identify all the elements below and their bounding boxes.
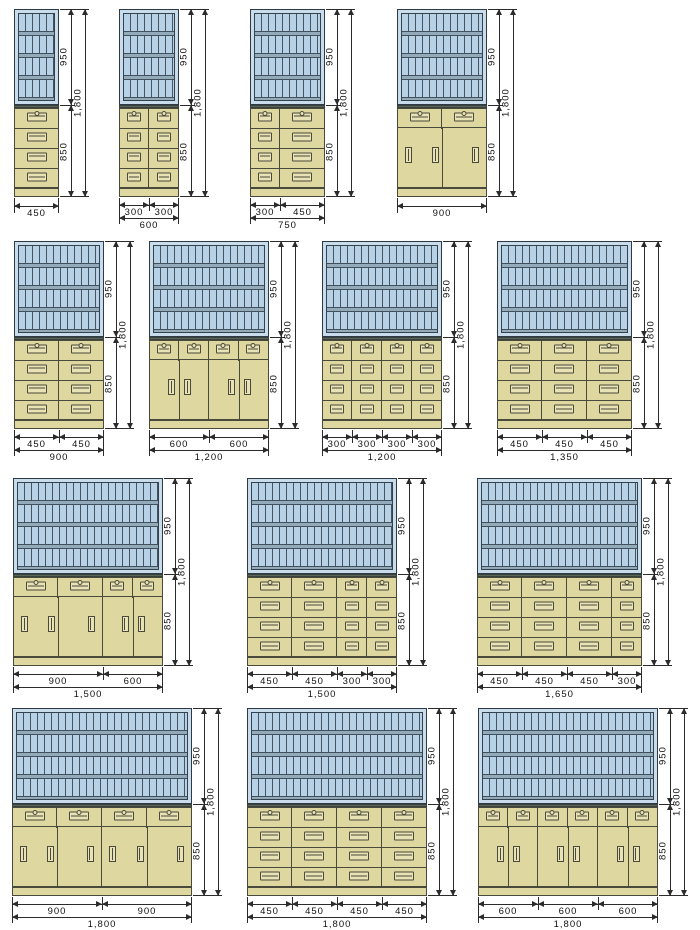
cabinet-1650: 9508501,8004504504503001,650 — [477, 478, 678, 700]
drawer — [59, 341, 103, 361]
drawer — [323, 381, 351, 401]
cabinet-base — [13, 577, 163, 657]
dim-label-total-height: 1,800 — [205, 772, 217, 832]
dim-label-segment: 450 — [522, 676, 567, 687]
drawer-handle — [27, 405, 47, 414]
drawer-handle — [258, 132, 272, 141]
drawer-handle — [304, 831, 324, 840]
door-handle-slot — [122, 616, 129, 632]
drawer — [248, 808, 291, 828]
cabinet-section-drawers — [586, 340, 632, 420]
lock-icon — [610, 810, 615, 815]
dim-label-total-width: 750 — [250, 220, 325, 231]
dim-label-total-height: 1,800 — [500, 73, 512, 133]
arrowhead — [496, 9, 502, 15]
cabinet-section-drawers — [336, 807, 382, 887]
cabinet-section-hinged — [208, 340, 269, 420]
cabinet-1500-mixed: 9508501,8009006001,500 — [13, 478, 199, 700]
drawer-handle — [349, 831, 369, 840]
dim-label-total-width: 1,800 — [12, 919, 192, 930]
lock-icon — [191, 343, 196, 348]
lock-icon — [640, 810, 645, 815]
drawer — [248, 828, 291, 848]
lock-icon — [491, 810, 496, 815]
drawer-handle — [330, 405, 344, 414]
arrowhead — [278, 423, 284, 429]
drawer — [323, 341, 351, 361]
drawer — [15, 169, 58, 189]
dim-label-segment: 900 — [12, 906, 102, 917]
drawer — [15, 341, 58, 361]
door-handle-slot — [244, 379, 251, 395]
door-handle-slot — [48, 616, 55, 632]
drawer-handle — [620, 642, 634, 651]
lock-icon — [166, 810, 171, 815]
drawer-row — [103, 578, 162, 598]
drawer-handle — [394, 872, 414, 881]
cabinet-section-drawers — [351, 340, 382, 420]
drawer — [150, 341, 179, 361]
door-handle-slot — [21, 616, 28, 632]
dim-label-upper: 950 — [162, 496, 174, 556]
dim-label-lower: 850 — [641, 591, 653, 651]
drawer — [367, 638, 396, 658]
door-handle-slot — [109, 846, 116, 862]
dim-label-upper: 950 — [268, 259, 280, 319]
drawer — [542, 381, 586, 401]
dim-line — [658, 241, 659, 429]
cabinet-section-drawers — [291, 807, 337, 887]
drawer-handle — [420, 384, 434, 393]
dim-line — [684, 708, 685, 896]
drawer — [522, 618, 566, 638]
cabinet-section-drawers — [247, 807, 292, 887]
dim-label-total-width: 1,500 — [13, 689, 163, 700]
dim-label-upper: 950 — [426, 726, 438, 786]
glass-shelf-grid — [16, 712, 188, 800]
dim-label-lower: 850 — [631, 354, 643, 414]
drawer-handle — [349, 872, 369, 881]
lock-icon — [587, 580, 592, 585]
dim-label-segment: 300 — [352, 439, 382, 450]
drawer — [179, 341, 208, 361]
drawer — [15, 149, 58, 169]
drawer-handle — [620, 621, 634, 630]
dim-line — [478, 917, 658, 918]
glass-shelf-grid — [326, 245, 438, 333]
dim-line — [12, 917, 192, 918]
door-handle-slot — [432, 147, 439, 163]
arrowhead — [127, 423, 133, 429]
door-handle-slot — [573, 846, 580, 862]
door-handle-slot — [87, 846, 94, 862]
plinth — [477, 657, 642, 666]
arrowhead — [215, 890, 221, 896]
drawer-handle — [27, 364, 47, 373]
drawer-handle — [27, 152, 47, 161]
cabinet-section-drawers — [411, 340, 442, 420]
dim-label-segment: 600 — [103, 676, 163, 687]
drawer-row — [598, 808, 657, 828]
glass-cabinet-top — [477, 478, 642, 574]
dim-label-segment: 450 — [292, 676, 337, 687]
cabinet-450: 9508501,800450 — [14, 9, 95, 231]
dim-label-segment: 450 — [542, 439, 587, 450]
dim-label-segment: 900 — [13, 676, 103, 687]
arrowhead — [667, 708, 673, 714]
dim-label-upper: 950 — [641, 496, 653, 556]
drawer — [382, 808, 426, 828]
door-divider — [147, 827, 148, 886]
sliding-doors — [14, 596, 102, 656]
dim-label-upper: 950 — [486, 27, 498, 87]
glass-cabinet-top — [478, 708, 658, 804]
dim-label-total-width: 1,650 — [477, 689, 642, 700]
drawer — [323, 401, 351, 421]
dim-label-upper: 950 — [191, 726, 203, 786]
plinth — [119, 188, 179, 197]
drawer — [103, 578, 133, 598]
arrowhead — [202, 9, 208, 15]
hinged-doors — [209, 359, 268, 419]
dim-line — [423, 478, 424, 666]
cabinet-750: 9508501,800300450750 — [250, 9, 361, 231]
drawer — [498, 381, 541, 401]
drawer — [498, 361, 541, 381]
lock-icon — [335, 343, 340, 348]
drawer-handle — [599, 405, 619, 414]
drawer-row — [398, 109, 486, 129]
door-handle-slot — [20, 846, 27, 862]
drawer — [612, 578, 641, 598]
drawer-handle — [390, 364, 404, 373]
lock-icon — [161, 111, 166, 116]
arrowhead — [278, 241, 284, 247]
drawer — [522, 598, 566, 618]
drawer-handle — [599, 384, 619, 393]
drawer — [59, 361, 103, 381]
drawer — [280, 169, 324, 189]
lock-icon — [121, 810, 126, 815]
drawer — [587, 341, 631, 361]
drawer — [248, 638, 291, 658]
arrowhead — [188, 9, 194, 15]
drawer-handle — [510, 405, 530, 414]
door-divider — [57, 827, 58, 886]
drawer-handle — [157, 173, 171, 182]
glass-cabinet-top — [397, 9, 487, 105]
drawer-handle — [304, 621, 324, 630]
drawer — [248, 578, 291, 598]
drawer-handle — [345, 642, 359, 651]
arrowhead — [465, 241, 471, 247]
arrowhead — [201, 708, 207, 714]
cabinet-section-drawers — [14, 108, 59, 188]
drawer — [209, 341, 239, 361]
drawer-handle — [304, 642, 324, 651]
drawer-handle — [349, 851, 369, 860]
lock-icon — [364, 343, 369, 348]
arrowhead — [681, 890, 687, 896]
arrowhead — [451, 423, 457, 429]
lock-icon — [379, 580, 384, 585]
dim-label-upper: 950 — [103, 259, 115, 319]
cabinet-base — [12, 807, 192, 887]
glass-shelf-grid — [251, 712, 423, 800]
dim-label-lower: 850 — [103, 354, 115, 414]
drawer-handle — [304, 872, 324, 881]
glass-cabinet-top — [149, 241, 269, 337]
dim-line — [119, 218, 179, 219]
cabinet-base — [14, 108, 59, 188]
dim-label-lower: 850 — [178, 122, 190, 182]
dim-line — [247, 917, 427, 918]
drawer — [292, 618, 336, 638]
cabinet-base — [250, 108, 325, 188]
drawer — [567, 618, 611, 638]
drawer — [367, 618, 396, 638]
arrowhead — [186, 660, 192, 666]
sliding-doors — [398, 127, 486, 187]
drawer-handle — [330, 364, 344, 373]
drawer-handle — [292, 152, 312, 161]
drawer-handle — [394, 831, 414, 840]
dim-label-segment: 300 — [382, 439, 412, 450]
drawer-handle — [260, 831, 280, 840]
drawer-handle — [71, 384, 91, 393]
drawer — [587, 381, 631, 401]
dim-line — [250, 205, 325, 206]
arrowhead — [510, 191, 516, 197]
cabinet-1800-sliding: 9508501,8009009001,800 — [12, 708, 228, 930]
door-divider — [568, 827, 569, 886]
lock-icon — [79, 343, 84, 348]
dim-line — [130, 241, 131, 429]
cabinet-base — [478, 807, 658, 887]
cabinet-section-hinged — [537, 807, 598, 887]
drawer — [120, 109, 148, 129]
cabinet-1800-doors: 9508501,8006006006001,800 — [478, 708, 694, 930]
drawer — [57, 808, 101, 828]
drawer — [15, 401, 58, 421]
dim-label-upper: 950 — [396, 496, 408, 556]
arrowhead — [420, 478, 426, 484]
drawer-handle — [620, 601, 634, 610]
dim-line — [477, 687, 642, 688]
lock-icon — [497, 580, 502, 585]
cabinet-section-drawers — [336, 577, 367, 657]
cabinet-900: 9508501,800450450900 — [14, 241, 140, 463]
drawer-handle — [375, 601, 389, 610]
arrowhead — [496, 191, 502, 197]
plinth — [14, 188, 59, 197]
arrowhead — [655, 423, 661, 429]
plinth — [250, 188, 325, 197]
dim-label-total-width: 900 — [397, 208, 487, 219]
dim-label-segment: 450 — [477, 676, 522, 687]
cabinet-section-hinged — [478, 807, 538, 887]
arrowhead — [292, 423, 298, 429]
glass-shelf-grid — [153, 245, 265, 333]
arrowhead — [450, 708, 456, 714]
arrowhead — [406, 660, 412, 666]
drawer — [628, 808, 658, 828]
drawer-handle — [258, 152, 272, 161]
dim-label-segment: 600 — [598, 906, 658, 917]
drawer — [15, 361, 58, 381]
lock-icon — [263, 111, 268, 116]
dim-label-lower: 850 — [426, 821, 438, 881]
drawer — [292, 848, 336, 868]
drawer-handle — [510, 384, 530, 393]
drawer-handle — [258, 173, 272, 182]
cabinet-section-sliding — [13, 577, 103, 657]
hinged-doors — [479, 826, 537, 886]
cabinet-1200: 9508501,8003003003003001,200 — [322, 241, 478, 463]
arrowhead — [82, 9, 88, 15]
dim-line — [497, 450, 632, 451]
drawer-handle — [292, 132, 312, 141]
drawer-handle — [554, 405, 574, 414]
cabinet-section-drawers — [521, 577, 567, 657]
dim-label-total-width: 1,500 — [247, 689, 397, 700]
cabinet-base — [497, 340, 632, 420]
lock-icon — [34, 111, 39, 116]
cabinet-base — [14, 340, 104, 420]
plinth — [13, 657, 163, 666]
dim-label-total-height: 1,800 — [410, 542, 422, 602]
arrowhead — [665, 660, 671, 666]
dim-line — [14, 450, 104, 451]
drawer-handle — [554, 364, 574, 373]
glass-shelf-grid — [401, 13, 483, 101]
dim-label-segment: 600 — [538, 906, 598, 917]
drawer — [292, 868, 336, 888]
drawer — [251, 149, 279, 169]
cabinet-section-drawers — [291, 577, 337, 657]
drawer — [248, 848, 291, 868]
drawer-handle — [390, 405, 404, 414]
cabinet-section-drawers — [247, 577, 292, 657]
drawer-handle — [292, 173, 312, 182]
arrowhead — [667, 890, 673, 896]
dim-line — [322, 450, 442, 451]
lock-icon — [462, 111, 467, 116]
lock-icon — [520, 810, 525, 815]
lock-icon — [162, 343, 167, 348]
arrowhead — [68, 191, 74, 197]
lock-icon — [357, 810, 362, 815]
arrowhead — [641, 241, 647, 247]
dim-label-lower: 850 — [191, 821, 203, 881]
cabinet-section-drawers — [381, 340, 412, 420]
glass-cabinet-top — [14, 241, 104, 337]
drawer — [251, 109, 279, 129]
door-handle-slot — [405, 147, 412, 163]
drawer-row — [538, 808, 597, 828]
dim-line — [668, 478, 669, 666]
drawer — [337, 868, 381, 888]
dim-line — [218, 708, 219, 896]
drawer-handle — [534, 642, 554, 651]
drawer — [15, 129, 58, 149]
dim-label-lower: 850 — [396, 591, 408, 651]
drawer — [612, 618, 641, 638]
dim-label-segment: 450 — [247, 906, 292, 917]
dim-label-upper: 950 — [324, 27, 336, 87]
dim-label-total-width: 1,200 — [322, 452, 442, 463]
drawer — [251, 129, 279, 149]
door-handle-slot — [88, 616, 95, 632]
plinth — [247, 887, 427, 896]
lock-icon — [517, 343, 522, 348]
dim-label-total-height: 1,800 — [455, 305, 467, 365]
arrowhead — [465, 423, 471, 429]
drawer-handle — [27, 384, 47, 393]
arrowhead — [348, 9, 354, 15]
drawer-handle — [490, 621, 510, 630]
glass-shelf-grid — [18, 13, 55, 101]
door-handle-slot — [617, 846, 624, 862]
door-divider — [179, 360, 180, 419]
dim-label-lower: 850 — [162, 591, 174, 651]
drawer-handle — [260, 621, 280, 630]
glass-shelf-grid — [17, 482, 159, 570]
drawer — [15, 109, 58, 129]
drawer-handle — [27, 173, 47, 182]
dim-line — [295, 241, 296, 429]
dim-label-segment: 450 — [14, 439, 59, 450]
cabinet-section-drawers — [611, 577, 642, 657]
dim-label-segment: 450 — [567, 676, 612, 687]
arrowhead — [201, 890, 207, 896]
dim-line — [13, 687, 163, 688]
lock-icon — [132, 111, 137, 116]
lock-icon — [424, 343, 429, 348]
drawer — [59, 401, 103, 421]
lock-icon — [251, 343, 256, 348]
lock-icon — [267, 580, 272, 585]
drawer — [337, 578, 366, 598]
drawer — [382, 341, 411, 361]
drawer-row — [102, 808, 191, 828]
drawer-row — [150, 341, 208, 361]
drawer — [412, 361, 441, 381]
dim-label-segment: 450 — [292, 906, 337, 917]
drawer — [102, 808, 147, 828]
arrowhead — [451, 241, 457, 247]
drawer — [478, 598, 521, 618]
cabinet-base — [149, 340, 269, 420]
drawer — [587, 361, 631, 381]
drawer — [149, 169, 178, 189]
door-handle-slot — [513, 846, 520, 862]
drawer — [280, 149, 324, 169]
drawer — [567, 578, 611, 598]
drawer — [120, 149, 148, 169]
drawer — [352, 361, 381, 381]
drawer — [567, 598, 611, 618]
drawer — [337, 598, 366, 618]
glass-shelf-grid — [18, 245, 100, 333]
drawer-handle — [490, 642, 510, 651]
drawer-handle — [260, 642, 280, 651]
cabinet-section-drawers — [148, 108, 179, 188]
lock-icon — [542, 580, 547, 585]
dim-label-segment: 600 — [209, 439, 269, 450]
drawer-handle — [345, 621, 359, 630]
drawer — [292, 638, 336, 658]
